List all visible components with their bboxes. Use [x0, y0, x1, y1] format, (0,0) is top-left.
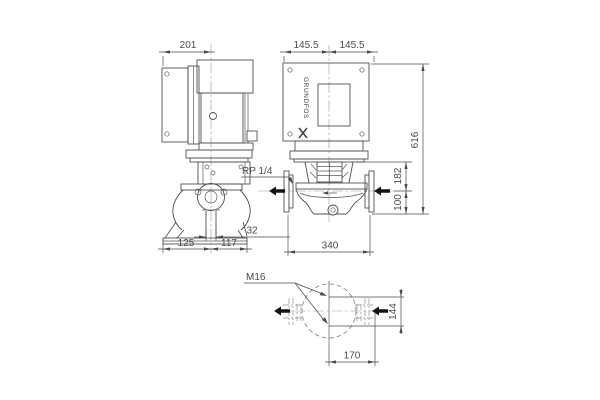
fan-cover-side	[197, 60, 253, 93]
dim-bolt-thread: M16	[244, 272, 328, 324]
volute-side-right	[240, 190, 250, 230]
dim-bolt-span-vertical-label: 144	[388, 303, 399, 320]
drain-plug	[328, 205, 338, 215]
dim-base-split: 125 117	[158, 238, 252, 253]
bolt-icon	[205, 165, 209, 169]
dim-bolt-span-vertical: 144	[388, 289, 403, 334]
dim-head-height: 182	[356, 162, 412, 191]
flow-mark-icon	[322, 191, 328, 194]
eyebolt-icon	[210, 113, 217, 120]
inlet-flange	[369, 171, 374, 212]
pump-top-plate-front	[296, 183, 367, 189]
flow-arrow-out-icon	[274, 307, 290, 316]
motor-fins-side	[201, 93, 243, 143]
dim-total-height-label: 616	[410, 131, 421, 148]
dim-half-width-left-label: 145.5	[293, 40, 318, 51]
nameplate	[318, 84, 350, 126]
flow-arrow-in-icon	[374, 187, 390, 196]
flow-arrow-out-icon	[269, 187, 285, 196]
terminal-box-side	[162, 68, 188, 142]
screw-icon	[288, 132, 292, 136]
dim-port-to-base: 100	[393, 191, 408, 214]
dim-head-height-label: 182	[393, 167, 404, 184]
dim-gauge-connection-label: RP 1/4	[242, 166, 273, 177]
dim-base-right-label: 117	[221, 238, 237, 249]
motor-foot-block	[247, 131, 257, 141]
dim-port-to-port-label: 340	[322, 241, 339, 252]
screw-icon	[360, 68, 364, 72]
dim-drain-width-label: 32	[246, 226, 258, 237]
drawing-canvas: GRUNDFOS	[0, 0, 600, 400]
screw-icon	[360, 132, 364, 136]
brand-logo-text: GRUNDFOS	[302, 77, 309, 119]
dim-gauge-connection: RP 1/4	[241, 166, 293, 184]
dim-motor-width: 201	[159, 40, 215, 66]
inlet-pipe-phantom	[355, 298, 375, 325]
dim-half-width-right-label: 145.5	[339, 40, 364, 51]
dim-motor-width-label: 201	[180, 40, 197, 51]
brand-logo-icon	[299, 128, 307, 138]
terminal-box-front	[283, 63, 369, 141]
front-view: GRUNDFOS	[258, 45, 394, 222]
dim-bolt-thread-label: M16	[246, 272, 266, 283]
pump-dimension-drawing: GRUNDFOS	[0, 0, 600, 400]
pump-top-plate-side	[181, 184, 242, 190]
screw-icon	[165, 132, 169, 136]
screw-icon	[165, 72, 169, 76]
side-view	[162, 44, 257, 253]
dim-port-to-base-label: 100	[393, 194, 404, 211]
screw-icon	[288, 68, 292, 72]
plan-view	[274, 281, 404, 346]
flow-arrow-in-icon	[372, 307, 388, 316]
dim-base-left-label: 125	[178, 238, 195, 249]
motor-flange-side	[186, 150, 252, 158]
dim-bolt-span-horizontal: 170	[325, 313, 379, 366]
motor-fin-band-side	[199, 143, 253, 150]
dim-bolt-span-horizontal-label: 170	[344, 351, 361, 362]
